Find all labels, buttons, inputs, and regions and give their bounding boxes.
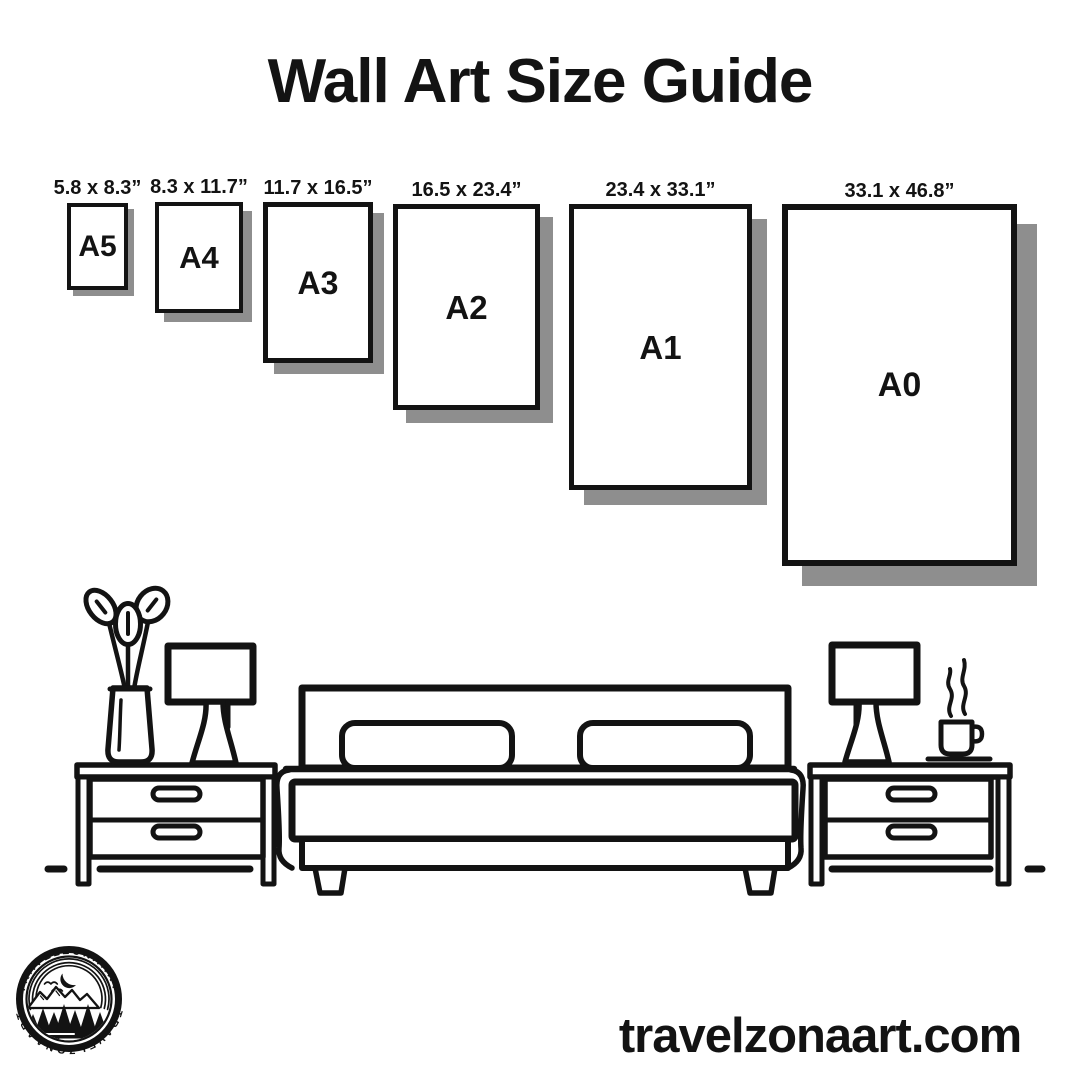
frame-dimensions-label: 16.5 x 23.4”: [411, 179, 521, 202]
pillow-right: [580, 723, 750, 768]
size-frame-a5: 5.8 x 8.3” A5: [67, 203, 128, 290]
bed-leg-left: [315, 868, 345, 893]
steam: [962, 660, 966, 714]
double-bed: [277, 688, 803, 893]
pillow-left: [342, 723, 512, 768]
size-frame-a1: 23.4 x 33.1” A1: [569, 204, 752, 490]
nightstand-leg: [998, 777, 1009, 884]
nightstand-top: [810, 765, 1010, 777]
lamp-base: [845, 702, 889, 762]
frame-dimensions-label: 11.7 x 16.5”: [264, 177, 373, 200]
bedroom-illustration: [30, 575, 1050, 905]
blanket: [292, 782, 795, 839]
bed-leg-right: [745, 868, 775, 893]
steam: [948, 669, 952, 716]
size-frame-a0: 33.1 x 46.8” A0: [782, 204, 1017, 566]
table-lamp-left: [168, 646, 253, 763]
vase-highlight: [119, 700, 121, 750]
size-frame-a2: 16.5 x 23.4” A2: [393, 204, 540, 410]
lamp-shade: [832, 645, 917, 702]
coffee-cup: [928, 660, 990, 759]
nightstand-top: [77, 765, 275, 777]
table-lamp-right: [832, 645, 917, 762]
plant-leaf: [116, 604, 141, 645]
frame-code-label: A5: [78, 232, 116, 262]
website-url: travelzonaart.com: [560, 1008, 1080, 1064]
frame-code-label: A2: [445, 291, 487, 324]
size-frame-a3: 11.7 x 16.5” A3: [263, 202, 373, 363]
cup-body: [941, 722, 972, 754]
frame-code-label: A0: [878, 368, 921, 402]
vase: [108, 688, 152, 762]
poster: Wall Art Size Guide 5.8 x 8.3” A5 8.3 x …: [0, 0, 1080, 1080]
frame-code-label: A4: [179, 242, 219, 273]
frame-dimensions-label: 8.3 x 11.7”: [150, 176, 248, 199]
frame-dimensions-label: 23.4 x 33.1”: [605, 179, 715, 202]
page-title: Wall Art Size Guide: [0, 46, 1080, 117]
frame-code-label: A3: [298, 267, 339, 299]
frame-dimensions-label: 5.8 x 8.3”: [54, 177, 142, 200]
size-frame-a4: 8.3 x 11.7” A4: [155, 202, 243, 313]
bed-platform: [302, 839, 788, 868]
plant: [80, 582, 175, 762]
lamp-shade: [168, 646, 253, 702]
nightstand-leg: [811, 777, 822, 884]
brand-logo: TRAVELZONAART TRAVELZONAART: [6, 930, 136, 1062]
frame-code-label: A1: [639, 331, 681, 364]
frame-dimensions-label: 33.1 x 46.8”: [844, 180, 954, 203]
